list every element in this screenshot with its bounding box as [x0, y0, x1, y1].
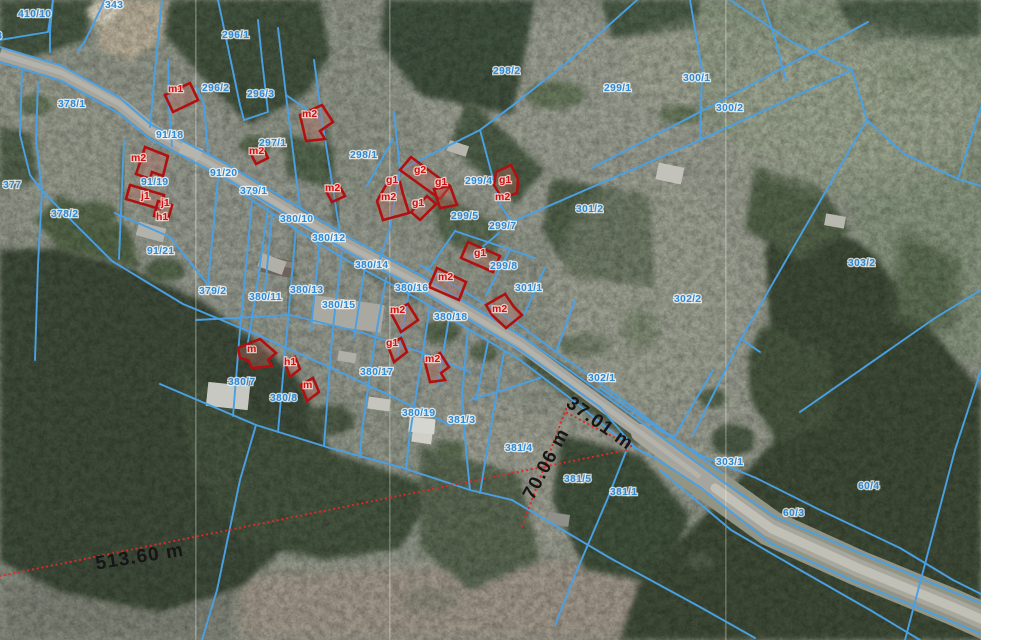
svg-text:m: m	[247, 343, 256, 355]
svg-text:m: m	[303, 379, 312, 391]
svg-text:j1: j1	[160, 197, 170, 209]
svg-text:299/7: 299/7	[489, 220, 516, 232]
svg-text:91/21: 91/21	[147, 245, 174, 257]
svg-text:m2: m2	[390, 304, 405, 316]
svg-text:378/2: 378/2	[51, 208, 78, 220]
svg-text:g1: g1	[435, 176, 447, 188]
svg-text:377: 377	[3, 179, 21, 191]
svg-text:91/20: 91/20	[210, 167, 237, 179]
svg-text:g2: g2	[414, 164, 426, 176]
svg-text:g1: g1	[386, 174, 398, 186]
svg-text:381/4: 381/4	[505, 442, 532, 454]
svg-text:381/5: 381/5	[564, 473, 591, 485]
svg-text:380/13: 380/13	[290, 284, 323, 296]
svg-text:380/18: 380/18	[434, 311, 467, 323]
svg-text:343: 343	[105, 0, 123, 11]
svg-text:380/12: 380/12	[312, 232, 345, 244]
svg-text:380/10: 380/10	[280, 213, 313, 225]
svg-text:379/1: 379/1	[240, 185, 267, 197]
svg-text:j1: j1	[140, 190, 150, 202]
svg-text:m2: m2	[381, 191, 396, 203]
svg-text:299/4: 299/4	[465, 175, 492, 187]
svg-text:298/1: 298/1	[350, 149, 377, 161]
svg-text:8: 8	[0, 30, 2, 42]
svg-text:296/2: 296/2	[202, 82, 229, 94]
svg-text:380/8: 380/8	[270, 392, 297, 404]
svg-text:60/4: 60/4	[858, 480, 879, 492]
svg-text:381/3: 381/3	[448, 414, 475, 426]
svg-text:g1: g1	[412, 197, 424, 209]
svg-text:m2: m2	[425, 353, 440, 365]
svg-text:298/2: 298/2	[493, 65, 520, 77]
svg-text:410/10: 410/10	[18, 8, 51, 20]
svg-text:299/1: 299/1	[604, 82, 631, 94]
svg-text:m2: m2	[492, 303, 507, 315]
svg-text:m2: m2	[131, 152, 146, 164]
svg-text:91/18: 91/18	[156, 129, 183, 141]
svg-text:380/14: 380/14	[355, 259, 388, 271]
svg-text:380/17: 380/17	[360, 366, 393, 378]
svg-text:303/1: 303/1	[716, 456, 743, 468]
svg-text:h1: h1	[156, 211, 168, 223]
svg-text:380/19: 380/19	[402, 407, 435, 419]
svg-text:297/1: 297/1	[259, 137, 286, 149]
svg-text:381/1: 381/1	[610, 486, 637, 498]
svg-text:301/2: 301/2	[576, 203, 603, 215]
svg-text:301/1: 301/1	[515, 282, 542, 294]
svg-text:378/1: 378/1	[58, 98, 85, 110]
svg-text:m2: m2	[438, 271, 453, 283]
svg-text:g1: g1	[386, 337, 398, 349]
svg-text:296/3: 296/3	[247, 88, 274, 100]
svg-text:h1: h1	[284, 356, 296, 368]
svg-text:g1: g1	[499, 174, 511, 186]
svg-text:380/11: 380/11	[249, 291, 282, 303]
svg-text:m2: m2	[495, 191, 510, 203]
svg-text:302/2: 302/2	[674, 293, 701, 305]
svg-text:296/1: 296/1	[222, 29, 249, 41]
svg-text:m1: m1	[168, 83, 183, 95]
svg-text:g1: g1	[474, 247, 486, 259]
svg-text:60/3: 60/3	[783, 507, 804, 519]
svg-text:91/19: 91/19	[141, 176, 168, 188]
svg-text:379/2: 379/2	[199, 285, 226, 297]
svg-text:302/1: 302/1	[588, 372, 615, 384]
svg-text:m2: m2	[302, 108, 317, 120]
svg-text:303/2: 303/2	[848, 257, 875, 269]
svg-text:299/8: 299/8	[490, 260, 517, 272]
svg-text:299/5: 299/5	[451, 210, 478, 222]
svg-text:380/16: 380/16	[395, 282, 428, 294]
svg-text:380/15: 380/15	[322, 299, 355, 311]
svg-text:300/1: 300/1	[683, 72, 710, 84]
svg-text:380/7: 380/7	[228, 376, 255, 388]
svg-text:300/2: 300/2	[716, 102, 743, 114]
svg-text:m2: m2	[325, 182, 340, 194]
